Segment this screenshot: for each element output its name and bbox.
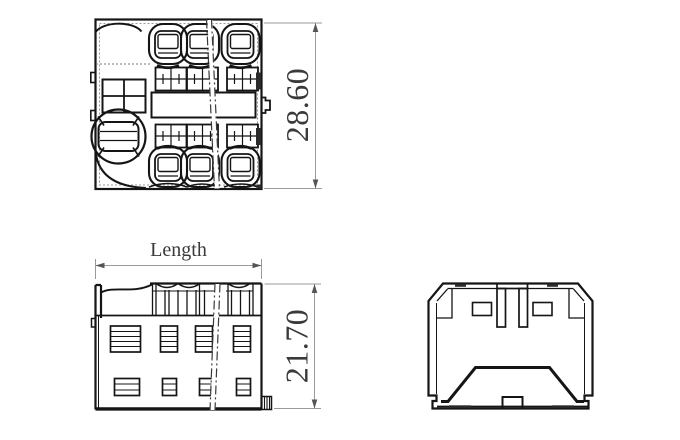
top-view xyxy=(91,20,270,190)
lower-window xyxy=(115,379,140,396)
vent-slots xyxy=(111,326,251,352)
cross-window xyxy=(103,80,146,113)
vent-slot-fins xyxy=(234,332,251,347)
top-edge-mark xyxy=(455,284,466,287)
vent-slot-fins xyxy=(111,332,141,347)
spring-crescents-top xyxy=(157,66,252,68)
corner-rail-foot-hatch xyxy=(265,397,270,409)
vent-slot xyxy=(234,326,251,352)
lower-window-lines xyxy=(237,384,251,390)
technical-drawing-canvas: 28.60 xyxy=(0,0,680,440)
side-inner-chamfers xyxy=(437,289,584,301)
arrowhead-right xyxy=(253,263,262,268)
vent-slot-fins xyxy=(161,332,178,347)
dimension-length: Length xyxy=(96,239,262,279)
side-inner-wall-steps xyxy=(437,289,584,319)
right-edge-section xyxy=(256,128,261,145)
side-window xyxy=(473,303,492,316)
lower-window xyxy=(237,379,251,396)
side-window xyxy=(533,303,552,316)
vent-slot xyxy=(196,326,213,352)
side-view xyxy=(429,284,593,409)
dimension-text-body-height: 21.70 xyxy=(279,309,315,384)
center-rail xyxy=(519,289,528,328)
vent-slot xyxy=(161,326,178,352)
clamp-unit xyxy=(156,68,187,91)
lever-curve xyxy=(101,285,152,293)
arrowhead-up xyxy=(312,284,318,293)
bottom-edge-mark xyxy=(449,405,471,408)
terminal-port xyxy=(222,147,260,187)
right-edge-section xyxy=(256,73,261,90)
vent-slot-fins xyxy=(196,332,213,347)
top-edge-mark xyxy=(547,284,558,287)
lever-segment-lines-left xyxy=(153,285,205,316)
center-channel xyxy=(152,93,256,118)
center-rail xyxy=(497,289,506,328)
terminal-port xyxy=(222,24,260,64)
dimension-body-height: 21.70 xyxy=(265,284,322,409)
extension-lines xyxy=(96,259,262,279)
side-inner-wall-lines xyxy=(437,303,585,394)
front-left-tab xyxy=(92,319,96,328)
dimension-overall-height: 28.60 xyxy=(264,23,322,189)
arrowhead-left xyxy=(96,263,105,268)
bottom-edge-mark xyxy=(552,405,574,408)
clamp-unit xyxy=(227,125,258,148)
dimension-text-overall-height: 28.60 xyxy=(279,68,315,143)
lower-window-lines xyxy=(163,384,177,390)
lower-windows xyxy=(115,379,251,396)
right-latch xyxy=(262,98,271,114)
clamp-unit xyxy=(227,68,258,91)
front-view xyxy=(92,284,272,411)
left-mount-tab xyxy=(91,73,96,83)
vent-slot xyxy=(111,326,141,352)
clamp-unit xyxy=(156,125,187,148)
arrowhead-down xyxy=(312,400,318,409)
lower-window xyxy=(163,379,177,396)
terminal-block-drawing: 28.60 xyxy=(0,0,680,440)
dimension-text-length: Length xyxy=(150,239,207,261)
lower-window-lines xyxy=(115,384,140,390)
left-mount-tab xyxy=(91,111,96,121)
lever-segment-lines-right xyxy=(228,285,253,316)
arrowhead-up xyxy=(313,23,319,32)
arrowhead-down xyxy=(313,180,319,189)
bottom-edge-section xyxy=(257,185,262,189)
top-view-dome-arc xyxy=(96,24,142,32)
